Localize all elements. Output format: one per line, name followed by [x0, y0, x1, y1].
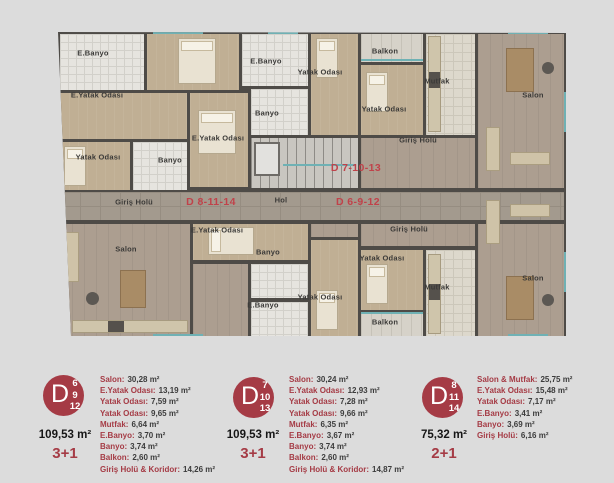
unit-total-area: 109,53 m² — [25, 429, 105, 441]
room-label: Salon — [522, 91, 543, 100]
unit-plan-label-d-7-10-13: D 7-10-13 — [331, 162, 381, 174]
unit-room-list: Salon30,28 m² E.Yatak Odası13,19 m² Yata… — [100, 374, 215, 475]
room-area-row: Yatak Odası9,66 m² — [289, 408, 404, 419]
floor-plan: E.Banyo E.Yatak Odası Yatak Odası Banyo … — [58, 32, 566, 336]
room-label: Banyo — [158, 156, 182, 165]
dining-table — [120, 270, 146, 308]
room-label: E.Banyo — [247, 301, 278, 310]
room-area-row: Yatak Odası7,28 m² — [289, 396, 404, 407]
double-bed — [198, 110, 236, 154]
room-area-row: Mutfak6,64 m² — [100, 419, 215, 430]
room-area-row: Mutfak6,35 m² — [289, 419, 404, 430]
room-area-row: Yatak Odası7,59 m² — [100, 396, 215, 407]
window — [564, 92, 566, 132]
unit-room-list: Salon30,24 m² E.Yatak Odası12,93 m² Yata… — [289, 374, 404, 475]
room-eyatak-left — [60, 93, 187, 139]
rug — [86, 292, 99, 305]
room-area-row: Yatak Odası7,17 m² — [477, 396, 572, 407]
sofa — [510, 204, 550, 217]
unit-plan-label-d-8-11-14: D 8-11-14 — [186, 196, 236, 208]
room-area-row: Giriş Holü & Koridor14,26 m² — [100, 464, 215, 475]
window — [153, 32, 203, 34]
room-label: Salon — [522, 274, 543, 283]
room-label: Mutfak — [424, 77, 449, 86]
rug — [542, 294, 554, 306]
unit-badge: D 7 10 13 — [233, 377, 274, 418]
room-ebanyo-left — [60, 34, 144, 90]
badge-floors: 6 9 12 — [67, 378, 83, 413]
room-label: Balkon — [372, 47, 398, 56]
stove — [108, 321, 124, 332]
unit-room-list: Salon & Mutfak25,75 m² E.Yatak Odası15,4… — [477, 374, 572, 441]
dining-table — [506, 276, 534, 320]
rug — [542, 62, 554, 74]
sofa — [64, 232, 79, 282]
double-bed — [178, 38, 216, 84]
room-banyo-left — [133, 142, 187, 190]
room-label: Hol — [275, 196, 288, 205]
window — [153, 334, 203, 336]
room-label: Yatak Odası — [298, 293, 343, 302]
window — [508, 32, 548, 34]
room-area-row: Giriş Holü & Koridor14,87 m² — [289, 464, 404, 475]
room-label: E.Yatak Odası — [192, 134, 244, 143]
unit-type: 3+1 — [25, 445, 105, 462]
room-area-row: E.Banyo3,70 m² — [100, 430, 215, 441]
kitchen-counter — [72, 320, 188, 333]
room-label: Mutfak — [424, 283, 449, 292]
room-label: E.Banyo — [250, 57, 281, 66]
room-label: Yatak Odası — [298, 68, 343, 77]
single-bed — [366, 264, 388, 304]
elevator — [254, 142, 280, 176]
sofa — [486, 127, 500, 171]
unit-total-area: 75,32 m² — [404, 429, 484, 441]
room-label: Banyo — [255, 109, 279, 118]
unit-type: 3+1 — [213, 445, 293, 462]
balcony-rail-top — [361, 59, 423, 61]
room-area-row: Salon30,24 m² — [289, 374, 404, 385]
room-label: Yatak Odası — [76, 153, 121, 162]
balcony-rail-bottom — [361, 312, 423, 314]
room-area-row: Banyo3,69 m² — [477, 419, 572, 430]
room-label: Salon — [115, 245, 136, 254]
room-area-row: Balkon2,60 m² — [289, 452, 404, 463]
unit-badge: D 8 11 14 — [422, 377, 463, 418]
room-label: Banyo — [256, 248, 280, 257]
unit-badge: D 6 9 12 — [43, 375, 84, 416]
unit-total-area: 109,53 m² — [213, 429, 293, 441]
badge-floors: 7 10 13 — [257, 380, 273, 415]
room-area-row: E.Yatak Odası15,48 m² — [477, 385, 572, 396]
room-area-row: Salon30,28 m² — [100, 374, 215, 385]
sofa — [510, 152, 550, 165]
dining-table — [506, 48, 534, 92]
window — [268, 32, 298, 34]
room-label: Giriş Holü — [390, 225, 428, 234]
room-label: E.Banyo — [77, 49, 108, 58]
room-area-row: Balkon2,60 m² — [100, 452, 215, 463]
window — [564, 252, 566, 292]
room-label: Balkon — [372, 318, 398, 327]
badge-floors: 8 11 14 — [446, 380, 462, 415]
room-label: Yatak Odası — [360, 254, 405, 263]
room-area-row: E.Banyo3,67 m² — [289, 430, 404, 441]
room-label: Giriş Holü — [399, 136, 437, 145]
window — [508, 334, 548, 336]
room-area-row: Yatak Odası9,65 m² — [100, 408, 215, 419]
unit-type: 2+1 — [404, 445, 484, 462]
unit-plan-label-d-6-9-12: D 6-9-12 — [336, 196, 380, 208]
room-label: Giriş Holü — [115, 198, 153, 207]
room-area-row: Salon & Mutfak25,75 m² — [477, 374, 572, 385]
room-area-row: E.Yatak Odası12,93 m² — [289, 385, 404, 396]
room-area-row: Banyo3,74 m² — [289, 441, 404, 452]
room-area-row: E.Banyo3,41 m² — [477, 408, 572, 419]
room-area-row: Banyo3,74 m² — [100, 441, 215, 452]
room-area-row: Giriş Holü6,16 m² — [477, 430, 572, 441]
sofa — [486, 200, 500, 244]
room-filler-bottom — [311, 224, 358, 237]
room-label: Yatak Odası — [362, 105, 407, 114]
floor-plan-page: E.Banyo E.Yatak Odası Yatak Odası Banyo … — [0, 0, 614, 483]
room-label: E.Yatak Odası — [71, 91, 123, 100]
room-koridor-bottom — [193, 264, 248, 336]
room-label: E.Yatak Odası — [191, 226, 243, 235]
room-area-row: E.Yatak Odası13,19 m² — [100, 385, 215, 396]
